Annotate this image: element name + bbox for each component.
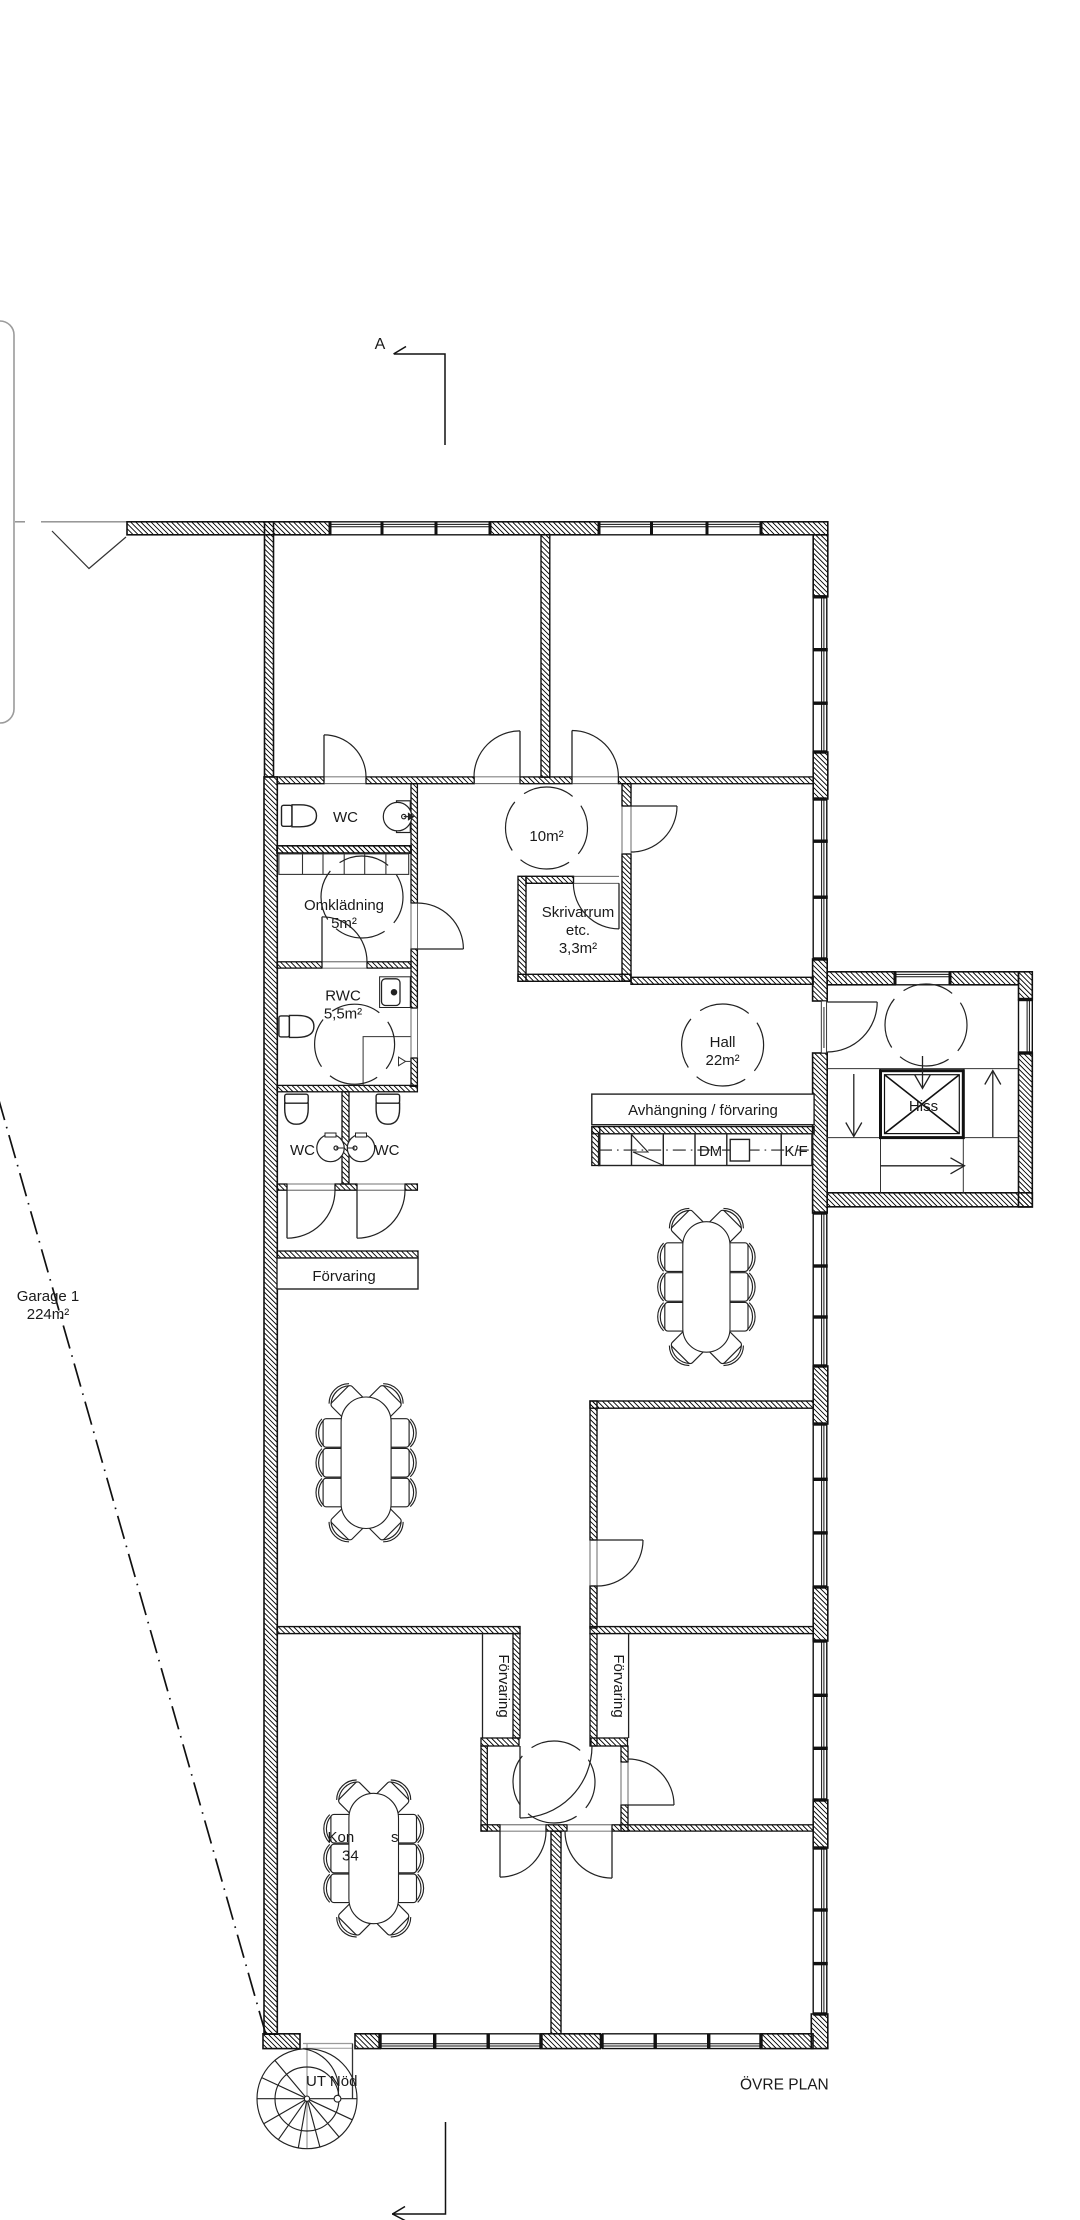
svg-text:Avhängning / förvaring: Avhängning / förvaring (628, 1102, 778, 1119)
svg-text:Skrivarrum: Skrivarrum (542, 904, 615, 921)
svg-text:etc.: etc. (566, 922, 590, 939)
svg-text:RWC: RWC (325, 988, 361, 1005)
svg-text:Hiss: Hiss (909, 1098, 938, 1115)
svg-text:224m²: 224m² (27, 1306, 70, 1323)
svg-text:s: s (391, 1829, 399, 1846)
svg-text:5,5m²: 5,5m² (324, 1006, 362, 1023)
svg-text:DM: DM (699, 1143, 722, 1160)
svg-text:A: A (375, 336, 386, 353)
svg-text:Förvaring: Förvaring (495, 1654, 512, 1717)
svg-text:22m²: 22m² (706, 1052, 740, 1069)
svg-text:WC: WC (333, 809, 358, 826)
svg-text:K/F: K/F (784, 1143, 807, 1160)
svg-text:Hall: Hall (710, 1034, 736, 1051)
svg-text:3,3m²: 3,3m² (559, 940, 597, 957)
svg-text:10m²: 10m² (529, 828, 563, 845)
svg-text:Kon: Kon (328, 1829, 355, 1846)
svg-text:WC: WC (290, 1142, 315, 1159)
svg-text:Omklädning: Omklädning (304, 897, 384, 914)
svg-text:UT Nöd: UT Nöd (306, 2073, 357, 2090)
svg-text:ÖVRE PLAN: ÖVRE PLAN (740, 2076, 829, 2094)
svg-text:Förvaring: Förvaring (610, 1654, 627, 1717)
svg-text:WC: WC (375, 1142, 400, 1159)
svg-text:Garage 1: Garage 1 (17, 1288, 80, 1305)
svg-text:Förvaring: Förvaring (312, 1268, 375, 1285)
svg-text:34: 34 (342, 1848, 359, 1865)
